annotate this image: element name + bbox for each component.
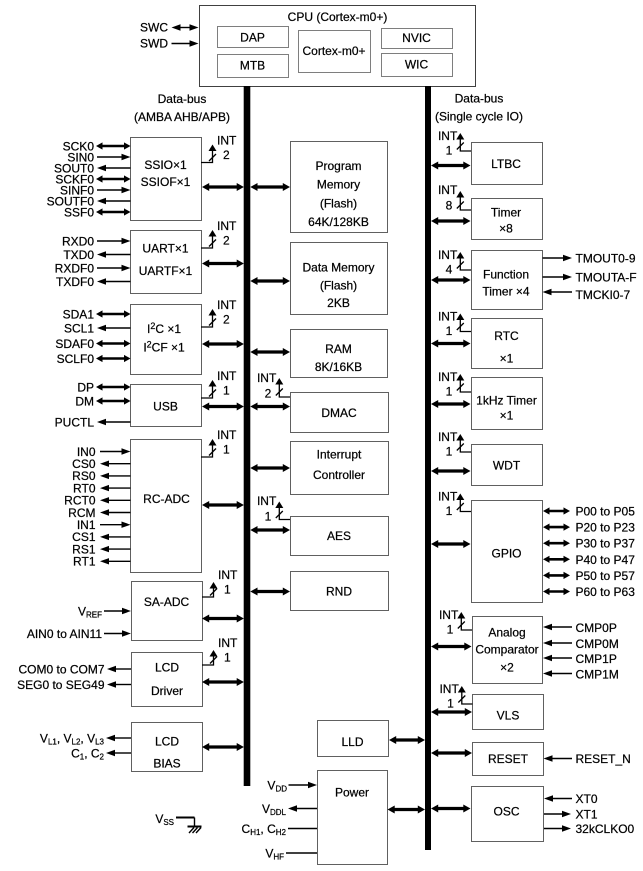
svg-text:RC-ADC: RC-ADC (143, 492, 190, 506)
svg-text:MTB: MTB (240, 59, 265, 73)
svg-text:SEG0 to SEG49: SEG0 to SEG49 (17, 678, 105, 692)
svg-text:BIAS: BIAS (153, 757, 180, 771)
svg-text:RAM: RAM (325, 342, 352, 356)
svg-text:NVIC: NVIC (402, 31, 431, 45)
svg-text:SWD: SWD (140, 37, 168, 51)
svg-text:(Flash): (Flash) (320, 279, 357, 293)
svg-text:INT: INT (218, 636, 238, 650)
svg-text:USB: USB (153, 400, 178, 414)
svg-text:TMCKI0-7: TMCKI0-7 (576, 288, 631, 302)
svg-text:TMOUT0-9: TMOUT0-9 (576, 252, 636, 266)
svg-text:RESET_N: RESET_N (576, 752, 631, 766)
svg-text:INT: INT (438, 129, 458, 143)
svg-text:INT: INT (438, 370, 458, 384)
svg-text:RTC: RTC (494, 329, 519, 343)
svg-text:Interrupt: Interrupt (317, 448, 362, 462)
svg-text:1: 1 (224, 651, 231, 665)
svg-text:Timer: Timer (491, 206, 521, 220)
svg-text:COM0 to COM7: COM0 to COM7 (18, 662, 104, 676)
svg-text:VHF: VHF (265, 846, 284, 861)
svg-text:4: 4 (446, 263, 453, 277)
svg-text:Power: Power (335, 786, 369, 800)
svg-text:Memory: Memory (317, 178, 360, 192)
svg-text:SWC: SWC (140, 21, 168, 35)
svg-text:(Flash): (Flash) (320, 196, 357, 210)
svg-text:INT: INT (438, 430, 458, 444)
svg-text:1kHz Timer: 1kHz Timer (476, 394, 537, 408)
svg-text:INT: INT (257, 494, 277, 508)
svg-text:×2: ×2 (500, 661, 514, 675)
svg-text:2: 2 (223, 313, 230, 327)
svg-text:SA-ADC: SA-ADC (144, 595, 190, 609)
svg-text:2KB: 2KB (327, 296, 350, 310)
svg-text:1: 1 (446, 324, 453, 338)
svg-text:Analog: Analog (488, 626, 525, 640)
svg-text:CMP0P: CMP0P (576, 621, 617, 635)
svg-text:8K/16KB: 8K/16KB (315, 360, 362, 374)
svg-text:INT: INT (438, 490, 458, 504)
svg-text:GPIO: GPIO (491, 547, 521, 561)
svg-text:SCL1: SCL1 (64, 321, 94, 335)
svg-text:XT1: XT1 (576, 808, 598, 822)
svg-text:1: 1 (223, 443, 230, 457)
svg-text:1: 1 (446, 385, 453, 399)
svg-text:SSIOF×1: SSIOF×1 (141, 175, 191, 189)
svg-text:×1: ×1 (500, 409, 514, 423)
svg-text:TMOUTA-F: TMOUTA-F (576, 271, 637, 285)
svg-text:TXDF0: TXDF0 (56, 275, 94, 289)
svg-text:INT: INT (438, 183, 458, 197)
svg-text:1: 1 (446, 504, 453, 518)
svg-text:LTBC: LTBC (491, 157, 521, 171)
svg-text:UARTF×1: UARTF×1 (139, 264, 193, 278)
svg-text:CMP1M: CMP1M (576, 668, 619, 682)
svg-text:Controller: Controller (313, 468, 365, 482)
svg-text:INT: INT (217, 219, 237, 233)
svg-text:(AMBA AHB/APB): (AMBA AHB/APB) (134, 110, 230, 124)
svg-text:INT: INT (438, 310, 458, 324)
svg-text:(Single cycle IO): (Single cycle IO) (435, 110, 523, 124)
svg-text:PUCTL: PUCTL (55, 415, 95, 429)
svg-text:AES: AES (327, 529, 351, 543)
svg-text:LCD: LCD (155, 661, 179, 675)
svg-text:32kCLKO0: 32kCLKO0 (576, 822, 635, 836)
svg-text:DAP: DAP (240, 31, 265, 45)
svg-text:Timer ×4: Timer ×4 (482, 285, 530, 299)
svg-text:1: 1 (446, 144, 453, 158)
svg-text:Data-bus: Data-bus (158, 92, 207, 106)
svg-text:1: 1 (447, 623, 454, 637)
svg-text:LLD: LLD (341, 735, 363, 749)
svg-text:CH1, CH2: CH1, CH2 (242, 822, 287, 837)
svg-text:SDAF0: SDAF0 (55, 337, 94, 351)
svg-text:INT: INT (438, 248, 458, 262)
svg-text:1: 1 (447, 697, 454, 711)
svg-text:VSS: VSS (155, 812, 174, 827)
svg-text:CMP1P: CMP1P (576, 652, 617, 666)
svg-text:INT: INT (439, 608, 459, 622)
svg-text:Data-bus: Data-bus (455, 92, 504, 106)
svg-text:×1: ×1 (500, 352, 514, 366)
svg-text:P40 to P47: P40 to P47 (576, 553, 636, 567)
svg-text:Data Memory: Data Memory (302, 261, 374, 275)
svg-text:VDD: VDD (267, 778, 287, 793)
svg-text:SCLF0: SCLF0 (57, 352, 95, 366)
svg-text:INT: INT (217, 428, 237, 442)
svg-text:P30 to P37: P30 to P37 (576, 537, 636, 551)
svg-text:SSIO×1: SSIO×1 (144, 158, 187, 172)
svg-text:UART×1: UART×1 (142, 242, 188, 256)
svg-text:8: 8 (446, 199, 453, 213)
svg-text:SSF0: SSF0 (64, 205, 94, 219)
svg-text:RXD0: RXD0 (62, 234, 94, 248)
svg-text:RXDF0: RXDF0 (55, 261, 95, 275)
svg-text:VREF: VREF (78, 604, 102, 619)
svg-text:P60 to P63: P60 to P63 (576, 585, 636, 599)
svg-text:2: 2 (223, 148, 230, 162)
svg-text:DM: DM (75, 394, 94, 408)
svg-text:INT: INT (217, 369, 237, 383)
svg-text:Program: Program (315, 159, 361, 173)
svg-text:P50 to P57: P50 to P57 (576, 569, 636, 583)
svg-text:XT0: XT0 (576, 792, 598, 806)
svg-text:VLS: VLS (497, 709, 520, 723)
svg-text:OSC: OSC (493, 805, 519, 819)
svg-text:2: 2 (265, 387, 272, 401)
svg-text:1: 1 (446, 445, 453, 459)
svg-text:Cortex-m0+: Cortex-m0+ (302, 44, 365, 58)
svg-text:Function: Function (483, 268, 529, 282)
svg-text:VDDL: VDDL (262, 802, 287, 817)
svg-text:2: 2 (223, 234, 230, 248)
svg-text:AIN0 to AIN11: AIN0 to AIN11 (27, 627, 102, 641)
svg-text:SDA1: SDA1 (63, 307, 95, 321)
svg-text:×8: ×8 (499, 222, 513, 236)
svg-text:64K/128KB: 64K/128KB (308, 215, 369, 229)
svg-text:RESET: RESET (488, 752, 529, 766)
svg-text:RT1: RT1 (73, 555, 96, 569)
svg-text:INT: INT (257, 371, 277, 385)
svg-text:LCD: LCD (155, 735, 179, 749)
svg-text:VL1, VL2, VL3: VL1, VL2, VL3 (40, 731, 105, 746)
svg-text:C1, C2: C1, C2 (71, 746, 104, 761)
svg-text:1: 1 (265, 510, 272, 524)
svg-text:TXD0: TXD0 (63, 248, 94, 262)
svg-text:1: 1 (224, 583, 231, 597)
svg-text:P20 to P23: P20 to P23 (576, 521, 636, 535)
svg-text:CPU (Cortex-m0+): CPU (Cortex-m0+) (288, 10, 388, 24)
svg-text:INT: INT (217, 134, 237, 148)
svg-text:1: 1 (223, 384, 230, 398)
svg-text:DMAC: DMAC (321, 406, 357, 420)
svg-text:Comparator: Comparator (475, 643, 538, 657)
svg-text:WIC: WIC (405, 58, 429, 72)
svg-text:RND: RND (326, 585, 352, 599)
svg-text:INT: INT (217, 298, 237, 312)
svg-text:WDT: WDT (493, 459, 521, 473)
svg-text:CMP0M: CMP0M (576, 637, 619, 651)
svg-text:INT: INT (218, 568, 238, 582)
svg-text:INT: INT (439, 682, 459, 696)
svg-text:Driver: Driver (151, 684, 183, 698)
svg-text:P00 to P05: P00 to P05 (576, 505, 636, 519)
svg-text:DP: DP (77, 380, 94, 394)
